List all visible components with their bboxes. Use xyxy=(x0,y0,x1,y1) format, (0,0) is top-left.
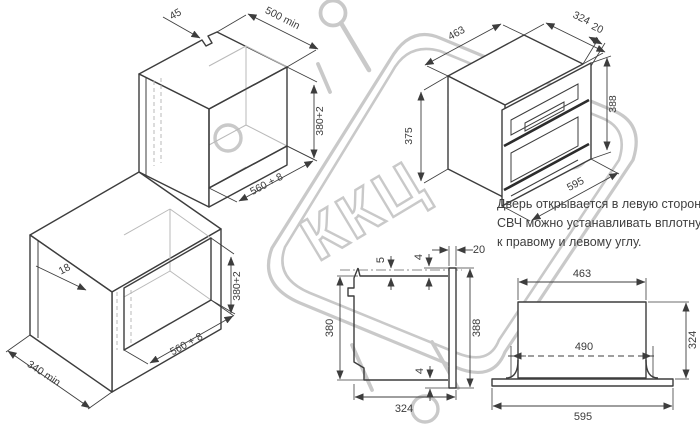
installation-diagram: ККЦ 45 500 min 380+2 xyxy=(0,0,700,424)
base-cabinet-drawing: 18 380+2 560 + 8 340 min xyxy=(6,172,243,409)
dim-oven-front-width: 595 xyxy=(565,175,586,194)
dim-tall-niche-height: 380+2 xyxy=(314,106,326,136)
dim-oven-frame-depth: 20 xyxy=(589,20,605,36)
note-line-2: СВЧ можно устанавливать вплотную xyxy=(497,216,700,230)
dim-side-front-height: 388 xyxy=(471,319,483,337)
dim-tall-top-notch: 45 xyxy=(168,6,184,22)
dim-oven-front-height: 388 xyxy=(607,95,619,113)
watermark-circle xyxy=(412,396,438,422)
dim-side-body-height: 380 xyxy=(324,319,336,337)
dim-tall-depth: 500 min xyxy=(263,5,302,33)
dim-oven-body-width: 463 xyxy=(446,24,467,43)
dim-plan-front-width: 595 xyxy=(574,411,592,423)
watermark-stroke xyxy=(318,64,330,92)
dim-plan-body-depth: 324 xyxy=(687,331,699,349)
dim-side-top-gap: 5 xyxy=(375,257,387,263)
watermark-circle xyxy=(215,125,241,151)
dim-side-top-recess: 4 xyxy=(413,254,425,260)
dim-oven-body-depth: 324 xyxy=(571,9,592,28)
oven-isometric-drawing: 463 324 20 388 375 595 xyxy=(403,9,619,221)
dim-base-depth: 340 min xyxy=(25,358,63,388)
note-line-3: к правому и левому углу. xyxy=(497,235,641,249)
note-line-1: Дверь открывается в левую сторону. xyxy=(497,197,700,211)
plan-view-drawing: 490 463 324 595 xyxy=(492,268,699,423)
dim-base-niche-height: 380+2 xyxy=(231,271,243,301)
magnifier-watermark-icon xyxy=(321,1,370,71)
installation-diagram-page: ККЦ 45 500 min 380+2 xyxy=(0,0,700,424)
dim-side-bottom-recess: 4 xyxy=(414,368,426,374)
dim-plan-body-width: 463 xyxy=(573,268,591,280)
dim-oven-body-height: 375 xyxy=(403,127,415,145)
tall-cabinet-drawing: 45 500 min 380+2 560 + 8 xyxy=(139,5,326,207)
side-view-drawing: 380 388 5 4 20 4 324 xyxy=(324,244,485,415)
note-text-block: Дверь открывается в левую сторону. СВЧ м… xyxy=(497,197,700,249)
dim-side-frame-depth: 20 xyxy=(473,244,485,256)
dim-side-body-depth: 324 xyxy=(395,403,413,415)
dim-plan-cutout-width: 490 xyxy=(575,341,593,353)
